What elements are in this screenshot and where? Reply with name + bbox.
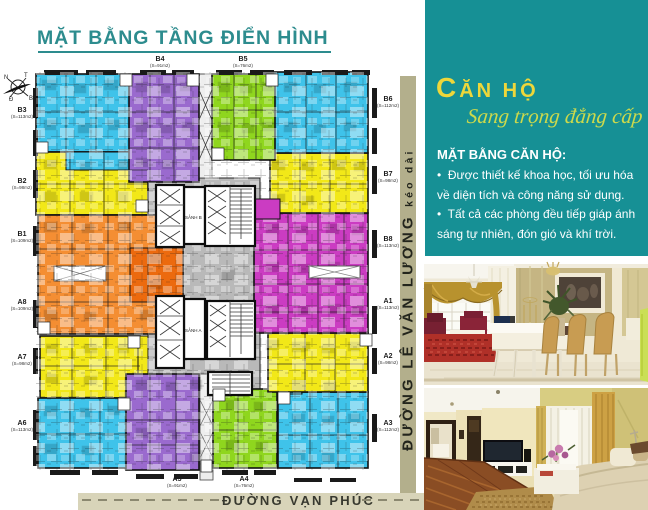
- svg-text:(S=113m2): (S=113m2): [377, 305, 400, 310]
- svg-text:(S=76m2): (S=76m2): [233, 63, 253, 68]
- svg-text:Đ: Đ: [9, 97, 14, 103]
- svg-text:B6: B6: [384, 96, 393, 103]
- svg-text:(S=112m2): (S=112m2): [377, 103, 400, 108]
- svg-text:N: N: [4, 75, 8, 81]
- svg-text:A2: A2: [384, 353, 393, 360]
- svg-text:A3: A3: [384, 420, 393, 427]
- svg-text:B8: B8: [384, 236, 393, 243]
- svg-text:(S=76m2): (S=76m2): [234, 483, 254, 488]
- svg-text:B: B: [29, 96, 33, 102]
- svg-text:B5: B5: [239, 56, 248, 63]
- svg-text:(S=91m2): (S=91m2): [167, 483, 187, 488]
- svg-text:T: T: [24, 73, 28, 79]
- svg-text:(S=98m2): (S=98m2): [12, 185, 32, 190]
- svg-text:A4: A4: [240, 476, 249, 483]
- svg-text:B4: B4: [156, 56, 165, 63]
- svg-text:SẢNH B: SẢNH B: [185, 214, 202, 220]
- svg-text:A6: A6: [18, 420, 27, 427]
- svg-text:A8: A8: [18, 299, 27, 306]
- svg-text:(S=109m2): (S=109m2): [11, 238, 34, 243]
- svg-text:B2: B2: [18, 178, 27, 185]
- svg-text:(S=113m2): (S=113m2): [11, 427, 34, 432]
- svg-text:(S=113m2): (S=113m2): [377, 243, 400, 248]
- svg-text:(S=113m2): (S=113m2): [11, 114, 34, 119]
- svg-text:(S=91m2): (S=91m2): [150, 63, 170, 68]
- svg-text:(S=112m2): (S=112m2): [377, 427, 400, 432]
- svg-text:A7: A7: [18, 354, 27, 361]
- svg-text:(S=98m2): (S=98m2): [378, 178, 398, 183]
- svg-text:SẢNH A: SẢNH A: [185, 327, 202, 333]
- svg-text:(S=109m2): (S=109m2): [11, 306, 34, 311]
- svg-text:B3: B3: [18, 107, 27, 114]
- svg-text:(S=98m2): (S=98m2): [378, 360, 398, 365]
- svg-text:B7: B7: [384, 171, 393, 178]
- svg-text:(S=98m2): (S=98m2): [12, 361, 32, 366]
- svg-text:A5: A5: [173, 476, 182, 483]
- svg-text:B1: B1: [18, 231, 27, 238]
- svg-text:A1: A1: [384, 298, 393, 305]
